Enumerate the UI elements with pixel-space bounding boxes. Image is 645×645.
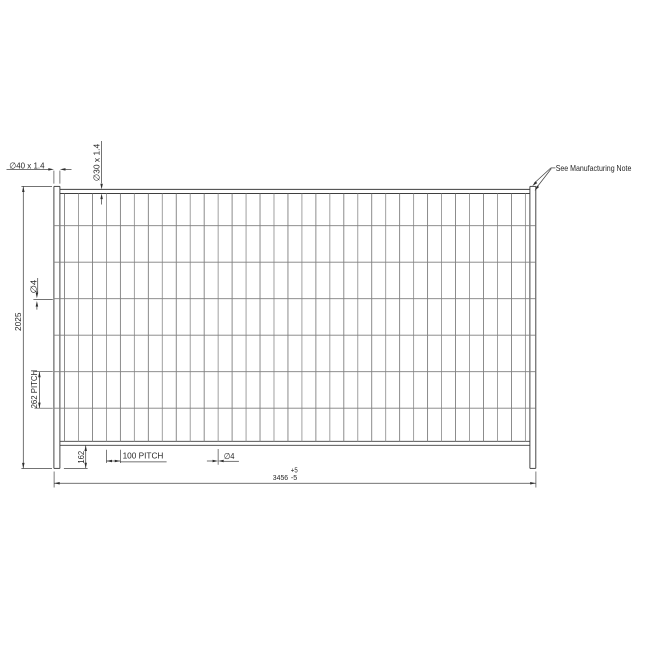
svg-text:3456: 3456	[273, 473, 288, 482]
svg-text:∅30 x 1.4: ∅30 x 1.4	[91, 143, 101, 181]
svg-text:-5: -5	[291, 473, 297, 482]
svg-text:2025: 2025	[14, 312, 23, 331]
svg-text:262 PITCH: 262 PITCH	[29, 370, 39, 409]
svg-text:162: 162	[77, 450, 86, 463]
svg-text:See Manufacturing Note: See Manufacturing Note	[556, 163, 632, 173]
svg-text:∅4: ∅4	[224, 451, 235, 461]
svg-text:100 PITCH: 100 PITCH	[123, 451, 164, 461]
svg-text:∅40 x 1.4: ∅40 x 1.4	[9, 161, 45, 171]
